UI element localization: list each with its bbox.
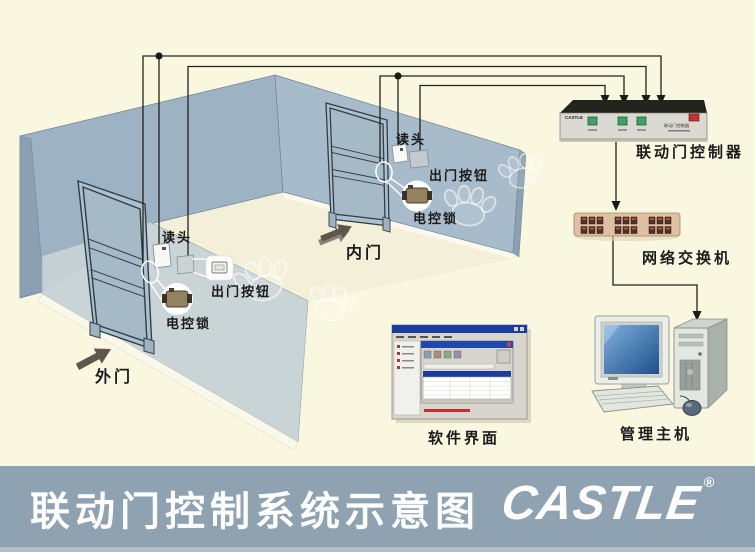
label-outer-door: 外门 xyxy=(95,363,133,387)
exit-button xyxy=(177,255,194,274)
brand-logo: CASTLE® xyxy=(502,476,710,531)
footer-bar: 联动门控制系统示意图 CASTLE® xyxy=(0,466,755,547)
label-host: 管理主机 xyxy=(620,423,692,444)
label-outer-exit-button: 出门按钮 xyxy=(211,281,271,300)
door-foot xyxy=(144,338,154,354)
software-table-header xyxy=(423,371,511,377)
diagram-canvas: CASTLE 联动门控制器 xyxy=(0,0,755,552)
electric-lock xyxy=(406,188,428,203)
controller-device: CASTLE 联动门控制器 xyxy=(560,100,707,141)
label-outer-reader: 读头 xyxy=(162,227,192,246)
network-switch-device xyxy=(574,213,680,241)
wire-junction xyxy=(394,72,401,79)
wire-junction xyxy=(155,52,162,59)
registered-mark: ® xyxy=(704,474,714,490)
door-foot xyxy=(383,217,390,232)
software-titlebar xyxy=(392,325,527,333)
controller-brand-text: CASTLE xyxy=(565,115,583,120)
exit-button xyxy=(409,150,429,168)
controller-power-indicator xyxy=(689,114,699,121)
computer-tower xyxy=(674,319,727,408)
controller-face-text: 联动门控制器 xyxy=(664,122,690,129)
software-alert-text xyxy=(424,409,470,412)
label-inner-door: 内门 xyxy=(346,239,384,263)
label-outer-lock: 电控锁 xyxy=(166,313,211,332)
computer-device xyxy=(592,316,727,416)
door-foot xyxy=(90,322,100,338)
software-table xyxy=(423,377,511,399)
page-title: 联动门控制系统示意图 xyxy=(30,479,480,537)
keyboard xyxy=(592,386,673,412)
label-inner-lock: 电控锁 xyxy=(413,208,458,227)
label-software: 软件界面 xyxy=(428,427,500,448)
label-inner-exit-button: 出门按钮 xyxy=(429,165,489,184)
door-foot xyxy=(329,212,336,228)
footer-strip xyxy=(0,547,755,552)
electric-lock xyxy=(166,291,188,307)
software-window xyxy=(392,325,531,423)
brand-logo-text: CASTLE xyxy=(498,476,704,531)
label-inner-reader: 读头 xyxy=(396,129,426,148)
label-controller: 联动门控制器 xyxy=(636,141,744,162)
label-network-switch: 网络交换机 xyxy=(642,247,732,268)
